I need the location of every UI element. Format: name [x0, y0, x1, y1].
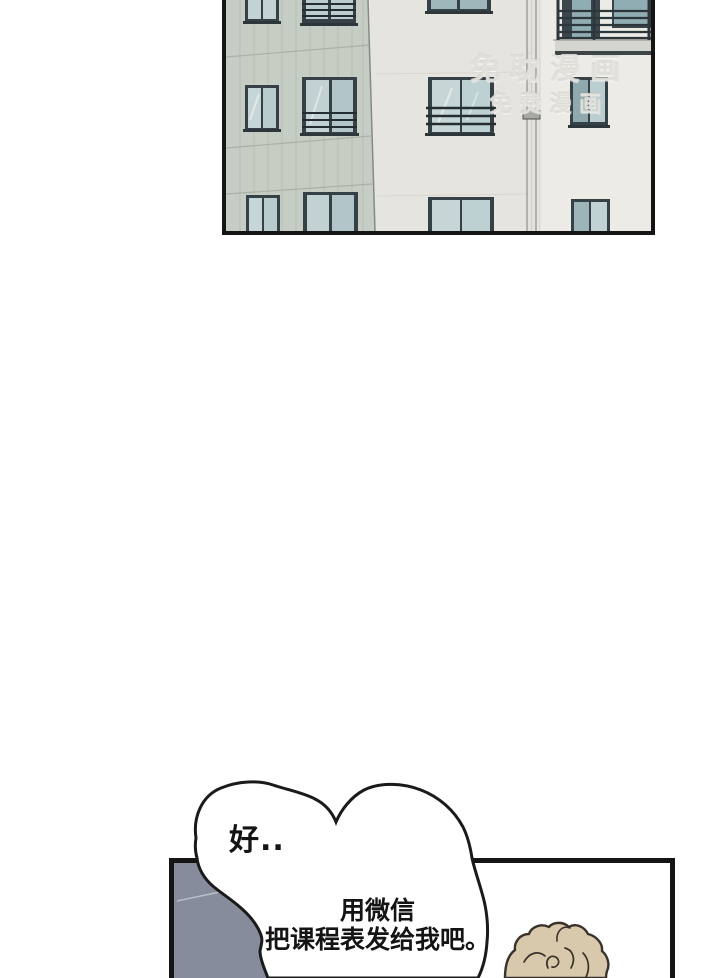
- window: [243, 85, 281, 132]
- window-with-railing: [300, 0, 358, 26]
- building-illustration: [226, 0, 651, 231]
- building-panel: 免耽漫画 免费漫画: [222, 0, 655, 235]
- window: [246, 195, 280, 231]
- window: [428, 197, 494, 231]
- window: [571, 199, 610, 231]
- window: [243, 0, 281, 24]
- bubble-text-wechat-line2: 把课程表发给我吧。: [260, 925, 495, 954]
- window-with-railing: [300, 77, 359, 136]
- bubble-text-wechat: 用微信 把课程表发给我吧。: [260, 896, 495, 954]
- character-hair: [505, 923, 608, 978]
- window: [568, 77, 610, 128]
- window-with-railing: [425, 77, 496, 136]
- window: [425, 0, 493, 14]
- comic-page: 免耽漫画 免费漫画 好..: [0, 0, 720, 978]
- bubble-text-wechat-line1: 用微信: [260, 896, 495, 925]
- window: [303, 192, 358, 231]
- bubble-text-ok: 好..: [229, 815, 285, 859]
